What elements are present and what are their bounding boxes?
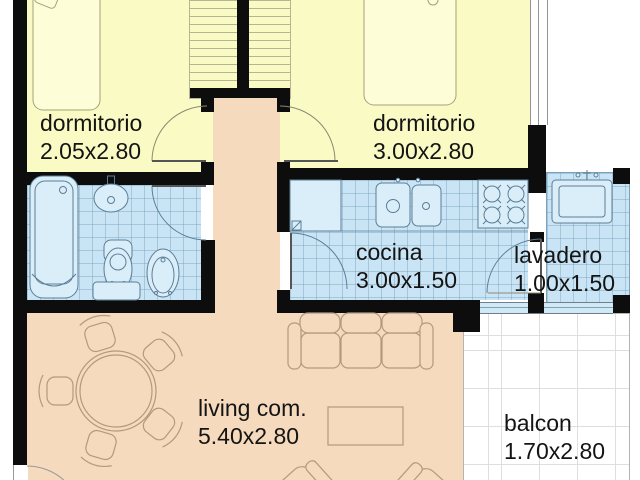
room-dims: 3.00x1.50	[356, 266, 457, 294]
room-name: balcon	[504, 409, 605, 437]
room-dims: 2.05x2.80	[40, 137, 142, 165]
room-name: living com.	[198, 394, 307, 422]
label-dormitorio2: dormitorio 3.00x2.80	[373, 109, 475, 165]
label-balcon: balcon 1.70x2.80	[504, 409, 605, 465]
closets-floor	[190, 0, 290, 98]
room-name: lavadero	[514, 241, 615, 269]
room-name: cocina	[356, 238, 457, 266]
label-lavadero: lavadero 1.00x1.50	[514, 241, 615, 297]
room-dims: 1.70x2.80	[504, 437, 605, 465]
room-bathroom-floor	[27, 185, 201, 300]
room-dims: 5.40x2.80	[198, 422, 307, 450]
corridor-floor	[213, 98, 280, 313]
room-dims: 3.00x2.80	[373, 137, 475, 165]
entry-doorway	[13, 465, 28, 480]
bedroom2-window	[530, 0, 548, 125]
label-living: living com. 5.40x2.80	[198, 394, 307, 450]
floor-plan: dormitorio 2.05x2.80 dormitorio 3.00x2.8…	[0, 0, 640, 480]
balcony-window	[480, 302, 613, 314]
room-name: dormitorio	[40, 109, 142, 137]
room-dims: 1.00x1.50	[514, 269, 615, 297]
label-dormitorio1: dormitorio 2.05x2.80	[40, 109, 142, 165]
label-cocina: cocina 3.00x1.50	[356, 238, 457, 294]
room-name: dormitorio	[373, 109, 475, 137]
